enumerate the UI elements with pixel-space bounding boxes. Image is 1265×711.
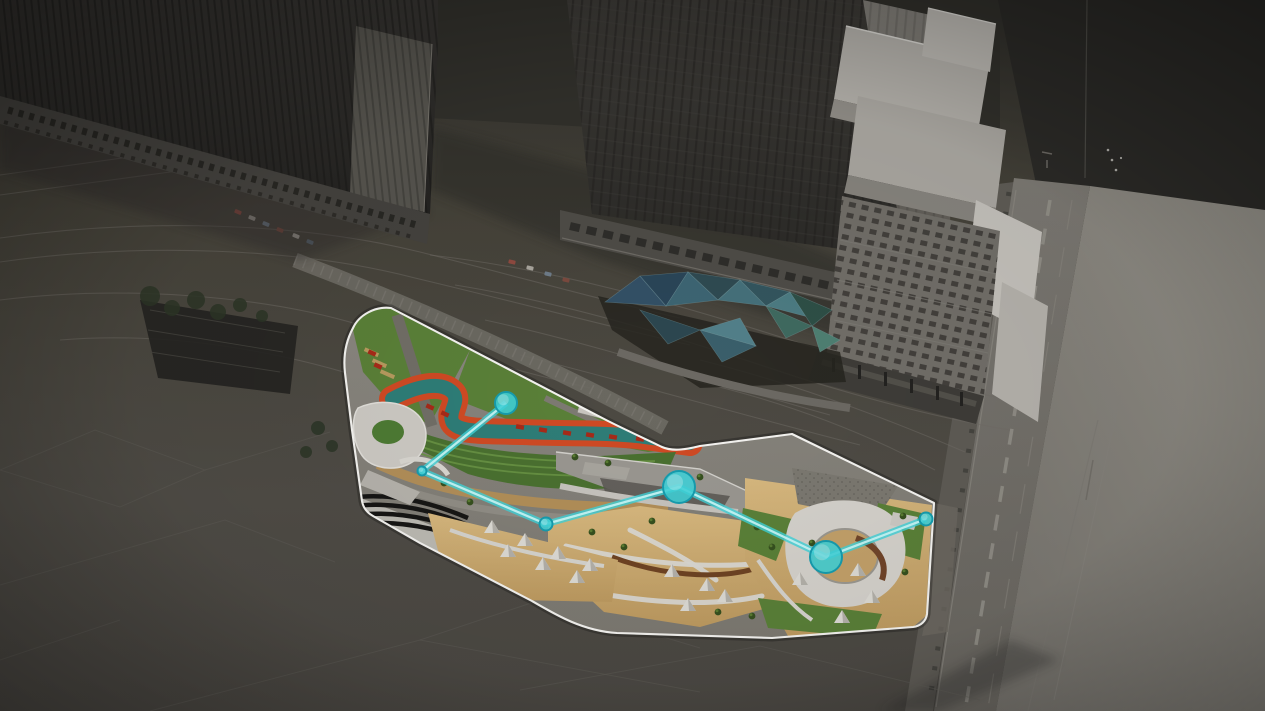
route-node-waypoint-2[interactable] (418, 467, 427, 476)
route-node-waypoint-1[interactable] (495, 392, 517, 414)
upper-terrace-dark-plane (998, 0, 1265, 212)
render-viewport (0, 0, 1265, 711)
route-node-waypoint-4[interactable] (663, 471, 695, 503)
route-node-waypoint-6[interactable] (920, 513, 933, 526)
city-model-scene (0, 0, 1265, 711)
route-node-waypoint-3[interactable] (540, 518, 553, 531)
route-node-waypoint-5[interactable] (810, 541, 842, 573)
